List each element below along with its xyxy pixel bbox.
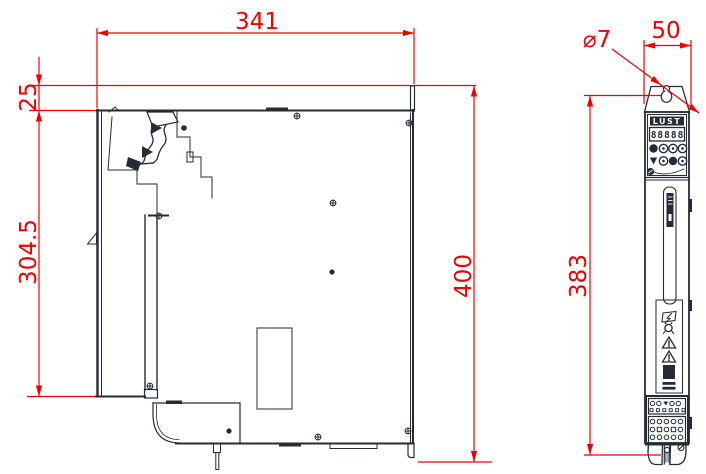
dimension-drawing: LUST 88888 [0,0,706,474]
side-label-plate [257,328,292,409]
flash-icon [662,312,676,323]
front-view: LUST 88888 [645,86,693,465]
keypad-row-2[interactable] [650,157,687,165]
side-mounting-tab [411,86,415,111]
omega-icon [664,322,674,333]
front-bottom-feet [648,444,686,465]
side-retaining-clip [108,107,212,216]
side-back-lug [88,233,97,244]
dim-left-column: 25 304.5 [16,57,42,397]
dim-text-25: 25 [16,82,42,111]
button-start[interactable] [650,158,657,165]
terminal-block [646,396,688,445]
dim-hole-diameter: ⌀7 [583,27,699,113]
keyhole-mounting-hole [661,86,672,103]
dimension-annotations: 341 25 304.5 400 50 [16,9,699,462]
dim-text-304-5: 304.5 [16,219,42,285]
latch-tab [689,199,692,212]
button-power[interactable] [649,144,657,152]
dim-text-341: 341 [235,9,279,35]
latch-tab [689,300,692,311]
latch-tab [689,417,692,429]
dim-text-dia7: ⌀7 [583,27,611,53]
button-mode[interactable] [669,157,677,165]
terminal-block-upper [649,399,686,415]
warning-triangle-icon [663,337,676,348]
dim-text-383: 383 [566,254,592,298]
side-top-tab [266,108,288,111]
warning-label-panel [656,300,683,393]
warning-triangle-icon-2 [663,351,676,362]
dim-overall-width: 341 [97,9,414,36]
dim-overall-height: 400 [451,86,477,463]
side-step-housing [153,401,240,444]
front-control-head: LUST 88888 [647,115,687,176]
keypad-row-1[interactable] [649,144,686,152]
manual-icon [663,365,675,379]
brand-logo-text: LUST [653,117,682,126]
display-digits: 88888 [651,130,685,141]
bottom-screw-slot [664,447,669,452]
front-name-slot [664,187,677,304]
side-view [88,86,415,470]
dim-front-width: 50 [644,18,691,49]
divider-bars-icon [663,382,676,385]
dim-text-50: 50 [651,18,680,44]
drawing-svg: LUST 88888 [0,0,706,474]
dim-mounting-spacing: 383 [566,96,593,456]
dim-text-400: 400 [451,254,477,298]
type-label [667,193,674,227]
side-bottom-foot [408,443,414,458]
